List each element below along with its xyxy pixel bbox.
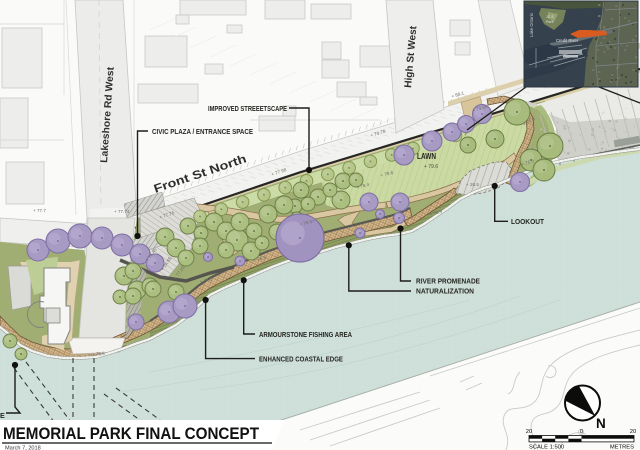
svg-text:+ 77.7: + 77.7 [33, 208, 46, 213]
svg-text:NATURALIZATION: NATURALIZATION [416, 287, 474, 296]
svg-text:Lake Ontario: Lake Ontario [529, 12, 534, 37]
svg-text:METRES: METRES [610, 445, 634, 450]
svg-text:20: 20 [526, 429, 532, 435]
svg-text:MEMORIAL PARK FINAL CONCEPT: MEMORIAL PARK FINAL CONCEPT [3, 424, 260, 443]
svg-text:CIVIC PLAZA / ENTRANCE SPACE: CIVIC PLAZA / ENTRANCE SPACE [152, 127, 253, 136]
svg-text:IMPROVED STREEETSCAPE: IMPROVED STREEETSCAPE [208, 104, 287, 113]
svg-text:E: E [0, 411, 5, 420]
svg-text:March 7, 2018: March 7, 2018 [5, 446, 41, 450]
svg-text:ARMOURSTONE FISHING AREA: ARMOURSTONE FISHING AREA [259, 330, 352, 339]
svg-text:+ 77.74: + 77.74 [114, 209, 130, 214]
svg-text:Park: Park [546, 20, 554, 24]
svg-text:+ 26.5: + 26.5 [466, 182, 479, 187]
svg-text:RIVER PROMENADE: RIVER PROMENADE [416, 277, 480, 286]
svg-text:ENHANCED COASTAL EDGE: ENHANCED COASTAL EDGE [259, 355, 343, 364]
svg-text:LAWN: LAWN [417, 152, 436, 161]
svg-text:+ 79.6: + 79.6 [424, 164, 438, 170]
svg-text:0: 0 [580, 429, 583, 435]
svg-text:Credit River: Credit River [556, 38, 579, 43]
svg-text:LOOKOUT: LOOKOUT [511, 217, 545, 226]
svg-text:N: N [596, 416, 606, 431]
svg-text:JC S: JC S [546, 15, 554, 19]
svg-text:SCALE 1:500: SCALE 1:500 [529, 445, 564, 450]
svg-text:20: 20 [630, 429, 636, 435]
